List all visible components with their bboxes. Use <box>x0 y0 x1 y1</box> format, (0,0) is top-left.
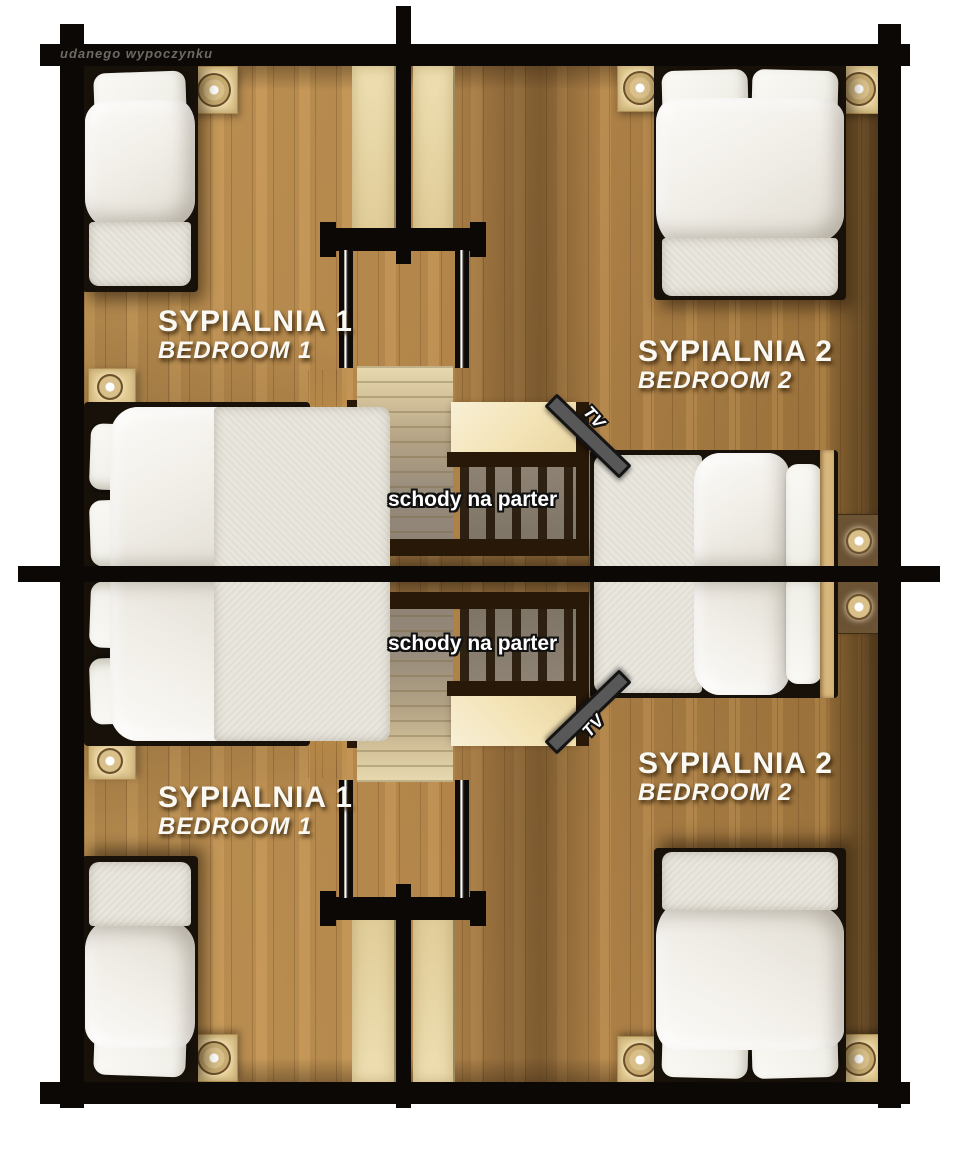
bed-mattress <box>594 574 702 693</box>
double-bed <box>654 58 846 300</box>
bed-duvet <box>85 920 195 1048</box>
room-label-bedroom1-upper: SYPIALNIA 1 BEDROOM 1 <box>158 306 353 363</box>
room-name-en: BEDROOM 2 <box>638 368 833 393</box>
room-name-pl: SYPIALNIA 1 <box>158 306 353 338</box>
lamp-icon <box>623 71 657 105</box>
photo-watermark: udanego wypoczynku <box>60 46 320 62</box>
bed-duvet <box>694 574 790 695</box>
interior-wall-cap-right <box>470 222 486 257</box>
wall-right <box>878 24 901 574</box>
bed-duvet <box>694 453 790 574</box>
bed-headboard <box>820 450 834 574</box>
room-name-en: BEDROOM 2 <box>638 780 833 805</box>
lamp-icon <box>197 1041 231 1075</box>
lamp-icon <box>97 374 123 400</box>
lamp-icon <box>842 72 876 106</box>
floor-plan-lower-unit <box>0 574 978 1148</box>
stair-kneewall-left <box>352 908 396 1082</box>
wall-top <box>40 1082 910 1104</box>
nightstand <box>88 740 136 780</box>
double-bed <box>84 574 310 746</box>
lamp-icon <box>842 1042 876 1076</box>
interior-wall-cap-left <box>320 891 336 926</box>
bed-mattress <box>214 407 390 574</box>
wall-left <box>60 24 84 574</box>
bed-mattress <box>662 852 838 910</box>
bed-mattress <box>214 574 390 741</box>
room-label-bedroom1-lower: SYPIALNIA 1 BEDROOM 1 <box>158 782 353 839</box>
wall-right <box>878 574 901 1124</box>
bed-duvet <box>656 98 844 244</box>
room-label-bedroom2-upper: SYPIALNIA 2 BEDROOM 2 <box>638 336 833 393</box>
interior-wall-cap-right <box>470 891 486 926</box>
room-name-en: BEDROOM 1 <box>158 338 353 363</box>
single-bed <box>82 58 198 292</box>
lamp-icon <box>97 748 123 774</box>
bed-mattress <box>89 222 191 286</box>
bed-pillow <box>786 574 822 684</box>
bed-duvet <box>656 904 844 1050</box>
bed-mattress <box>662 238 838 296</box>
stairs-label-upper: schody na parter <box>388 488 557 512</box>
bed-mattress <box>89 862 191 926</box>
lamp-icon <box>846 594 872 620</box>
interior-wall-cap-left <box>320 222 336 257</box>
room-name-en: BEDROOM 1 <box>158 814 353 839</box>
bed-headboard <box>820 574 834 698</box>
bed-mattress <box>594 455 702 574</box>
wall-middle <box>18 566 940 574</box>
room-label-bedroom2-lower: SYPIALNIA 2 BEDROOM 2 <box>638 748 833 805</box>
interior-wall <box>326 897 480 920</box>
double-bed <box>84 402 310 574</box>
double-bed <box>654 848 846 1090</box>
room-name-pl: SYPIALNIA 1 <box>158 782 353 814</box>
stair-kneewall-right <box>413 908 455 1082</box>
nightstand-shadowed <box>834 580 884 634</box>
floor-plan: udanego wypoczynku SYPIALNIA 1 BEDROOM 1… <box>0 0 978 1168</box>
wall-middle <box>18 574 940 582</box>
room-name-pl: SYPIALNIA 2 <box>638 336 833 368</box>
door-frame-right <box>455 250 469 368</box>
door-frame-right <box>455 780 469 898</box>
stair-kneewall-left <box>352 66 396 240</box>
stairs-label-lower: schody na parter <box>388 632 557 656</box>
bottom-crop <box>0 1108 978 1168</box>
bed-duvet <box>85 100 195 228</box>
railing-top-bar <box>447 452 589 467</box>
lamp-icon <box>623 1043 657 1077</box>
bed-pillow <box>786 464 822 574</box>
room-name-pl: SYPIALNIA 2 <box>638 748 833 780</box>
railing-top-bar <box>447 681 589 696</box>
single-bed <box>82 856 198 1090</box>
lamp-icon <box>846 528 872 554</box>
wall-left <box>60 574 84 1124</box>
nightstand-shadowed <box>834 514 884 568</box>
interior-wall <box>326 228 480 251</box>
lamp-icon <box>197 73 231 107</box>
stair-kneewall-right <box>413 66 455 240</box>
